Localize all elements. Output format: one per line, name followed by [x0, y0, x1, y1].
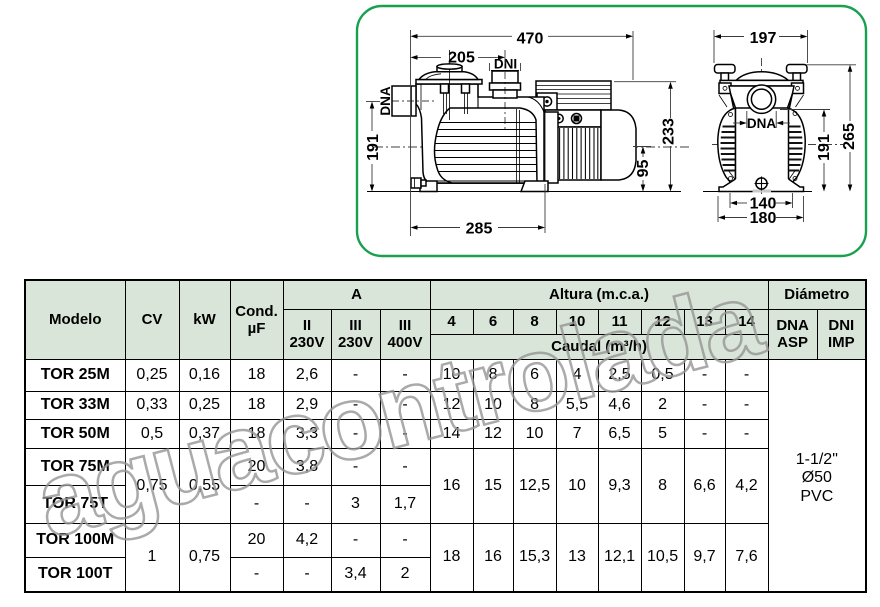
svg-text:265: 265	[841, 123, 858, 150]
svg-text:205: 205	[448, 50, 475, 67]
svg-text:DNA: DNA	[378, 86, 393, 115]
svg-text:191: 191	[816, 134, 833, 161]
svg-text:191: 191	[365, 134, 382, 161]
svg-text:180: 180	[750, 210, 777, 227]
svg-text:DNI: DNI	[494, 57, 517, 72]
svg-text:285: 285	[466, 221, 493, 238]
svg-text:470: 470	[517, 30, 544, 47]
svg-text:DNA: DNA	[747, 116, 776, 131]
svg-text:197: 197	[750, 30, 777, 47]
svg-text:233: 233	[661, 118, 678, 145]
svg-text:95: 95	[635, 160, 652, 178]
